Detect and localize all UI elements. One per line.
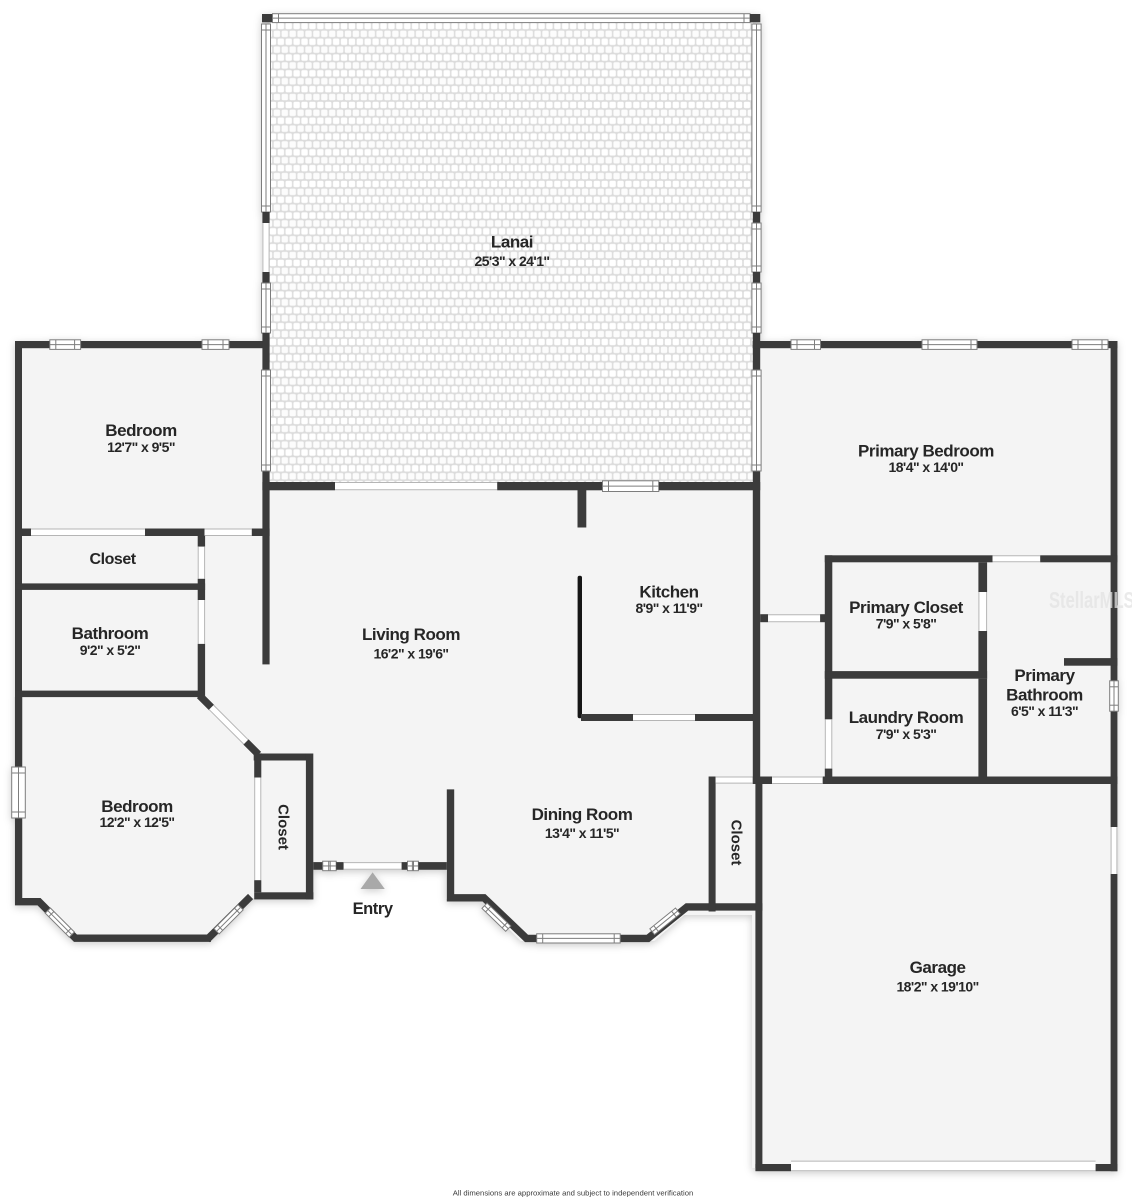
svg-text:13'4" x 11'5": 13'4" x 11'5"	[545, 825, 619, 841]
svg-text:7'9" x 5'3": 7'9" x 5'3"	[876, 726, 937, 742]
svg-text:8'9" x 11'9": 8'9" x 11'9"	[635, 600, 702, 616]
svg-text:Bedroom: Bedroom	[105, 421, 177, 440]
svg-text:12'2" x 12'5": 12'2" x 12'5"	[99, 814, 174, 830]
svg-text:Living Room: Living Room	[362, 625, 460, 644]
svg-text:7'9" x 5'8": 7'9" x 5'8"	[876, 616, 937, 632]
svg-text:Primary Closet: Primary Closet	[849, 598, 963, 617]
svg-text:All dimensions are approximate: All dimensions are approximate and subje…	[453, 1189, 694, 1198]
svg-text:Bathroom: Bathroom	[72, 624, 149, 643]
svg-text:Dining Room: Dining Room	[532, 805, 633, 824]
svg-text:18'2" x 19'10": 18'2" x 19'10"	[896, 979, 978, 995]
svg-text:Garage: Garage	[910, 958, 966, 977]
svg-text:Closet: Closet	[89, 551, 136, 568]
svg-text:Lanai: Lanai	[491, 233, 533, 252]
svg-text:18'4" x 14'0": 18'4" x 14'0"	[888, 459, 963, 475]
svg-text:Closet: Closet	[275, 804, 292, 850]
svg-text:Entry: Entry	[353, 900, 394, 918]
svg-text:9'2" x 5'2": 9'2" x 5'2"	[80, 642, 141, 658]
svg-text:6'5" x 11'3": 6'5" x 11'3"	[1011, 703, 1078, 719]
svg-text:StellarMLS: StellarMLS	[1049, 589, 1132, 614]
svg-text:16'2" x 19'6": 16'2" x 19'6"	[373, 646, 448, 662]
svg-text:Primary: Primary	[1014, 666, 1075, 685]
svg-text:Laundry Room: Laundry Room	[849, 708, 964, 727]
svg-text:Bathroom: Bathroom	[1006, 686, 1083, 705]
svg-text:25'3" x 24'1": 25'3" x 24'1"	[474, 253, 549, 269]
svg-text:Kitchen: Kitchen	[639, 583, 698, 602]
svg-text:Closet: Closet	[727, 820, 744, 866]
svg-text:12'7" x 9'5": 12'7" x 9'5"	[107, 439, 175, 455]
svg-text:Primary Bedroom: Primary Bedroom	[858, 442, 994, 461]
